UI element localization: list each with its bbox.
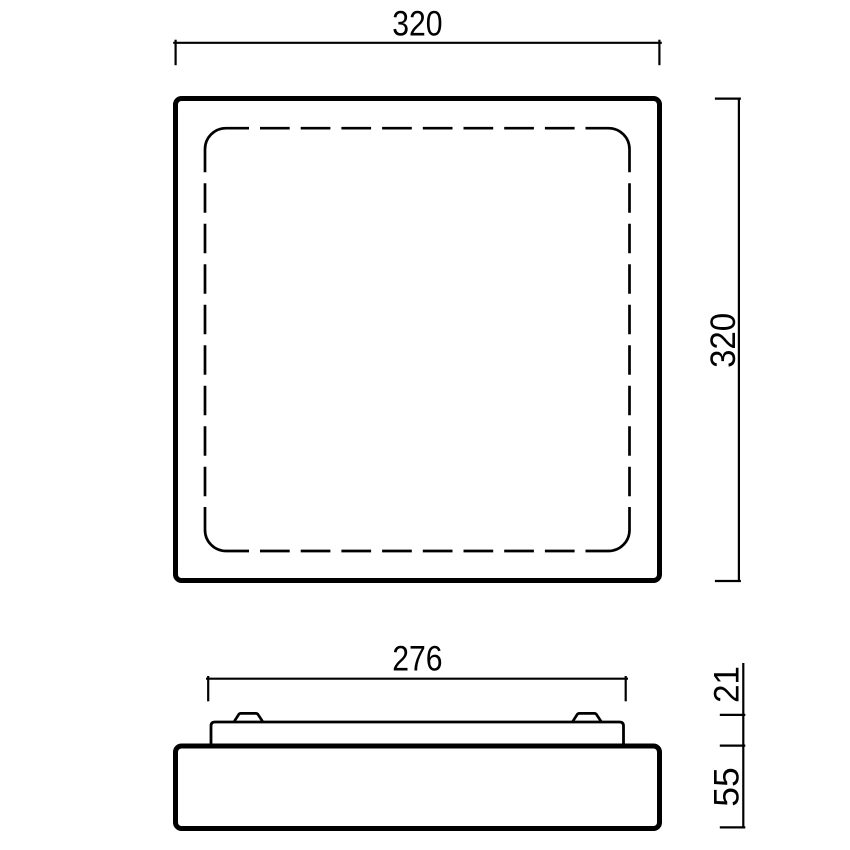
svg-text:55: 55: [707, 767, 747, 807]
svg-text:276: 276: [392, 638, 442, 678]
svg-text:320: 320: [392, 3, 442, 43]
svg-text:320: 320: [704, 313, 743, 368]
svg-text:21: 21: [707, 666, 746, 703]
